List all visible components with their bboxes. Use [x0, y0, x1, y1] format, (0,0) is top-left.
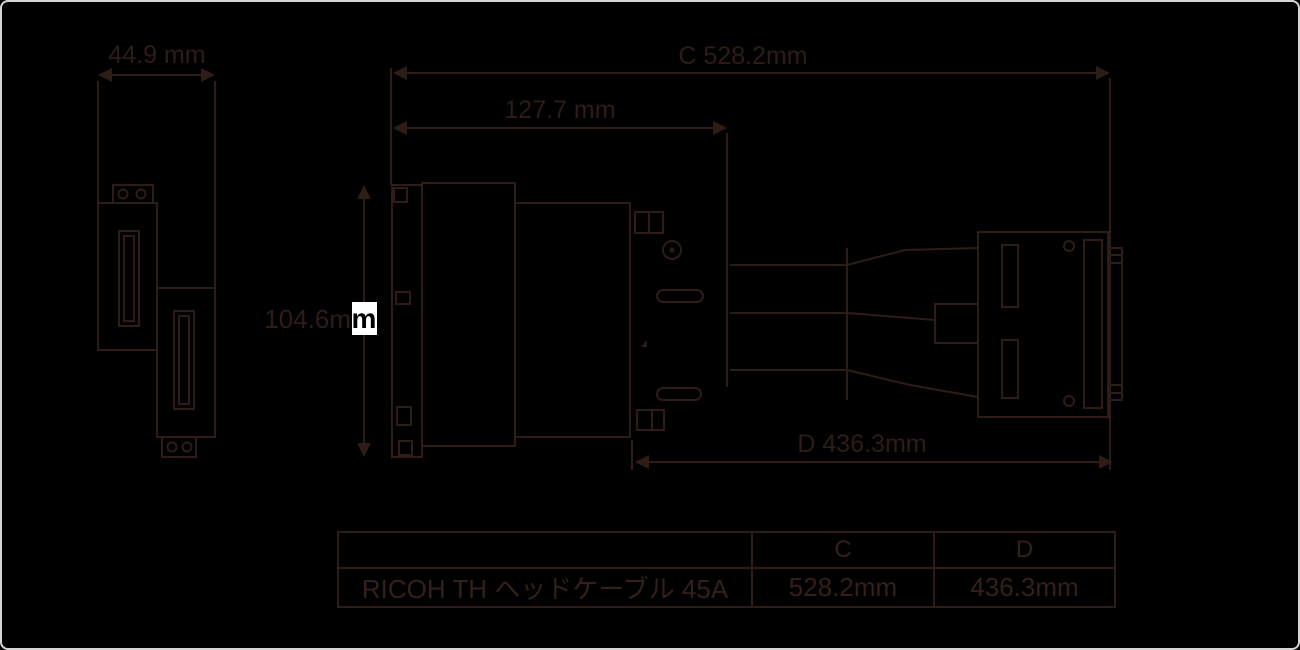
- lower-connector-slot: [174, 311, 194, 409]
- screw-hole-icon: [1064, 241, 1074, 251]
- table-header-c: C: [752, 532, 934, 568]
- connector-body: [978, 232, 1108, 417]
- wire-middle: [847, 313, 935, 320]
- connector-body: [422, 183, 515, 446]
- spec-table-header-row: C D: [338, 532, 1115, 568]
- boot-rib-bottom: [657, 388, 701, 400]
- screw-hole-icon: [1064, 396, 1074, 406]
- thumbscrew-center: [670, 248, 675, 253]
- arrowhead-up-icon: [357, 185, 371, 199]
- ferrite-block: [935, 304, 978, 343]
- cell-product-name: RICOH TH ヘッドケーブル 45A: [338, 568, 752, 607]
- right-connector-drawing: [978, 232, 1122, 417]
- dimension-d-436-3mm: D 436.3mm: [632, 430, 1113, 470]
- screw-hole-icon: [137, 190, 146, 199]
- arrowhead-right-icon: [713, 121, 727, 135]
- wire-top: [847, 248, 978, 265]
- upper-connector-slot: [119, 231, 139, 326]
- dimension-104-6mm: 104.6m m: [264, 185, 377, 457]
- lower-connector-slot-inner: [179, 316, 189, 404]
- boot-rib-top: [657, 290, 703, 302]
- screw-hole-icon: [168, 443, 177, 452]
- dimension-44-9mm-label: 44.9 mm: [108, 41, 205, 69]
- left-connector-drawing: [98, 185, 215, 457]
- front-wall: [1084, 240, 1102, 408]
- screw-hole-icon: [183, 443, 192, 452]
- table-header-product: [338, 532, 752, 568]
- screw-hole-icon: [119, 190, 128, 199]
- dimension-d-label: D 436.3mm: [797, 430, 926, 458]
- connector-front-section: [515, 203, 630, 437]
- arrowhead-right-icon: [1096, 66, 1110, 80]
- arrowhead-left-icon: [98, 68, 112, 82]
- upper-connector-slot-inner: [124, 236, 134, 321]
- inner-slot: [1002, 245, 1018, 307]
- latch-block-bottom: [637, 410, 664, 430]
- arrowhead-right-icon: [201, 68, 215, 82]
- dimension-104-6mm-label: 104.6m: [264, 304, 351, 334]
- inner-slot: [1002, 340, 1018, 398]
- cell-c-value: 528.2mm: [752, 568, 934, 607]
- arrowhead-left-icon: [393, 66, 407, 80]
- spec-table-data-row: RICOH TH ヘッドケーブル 45A 528.2mm 436.3mm: [338, 568, 1115, 607]
- spec-table: C D RICOH TH ヘッドケーブル 45A 528.2mm 436.3mm: [337, 531, 1116, 608]
- highlighted-letter: m: [352, 303, 377, 334]
- flange-hole: [394, 188, 407, 202]
- upper-connector-body: [98, 203, 157, 350]
- flange-hole: [399, 441, 412, 455]
- dimension-127-7mm-label: 127.7 mm: [504, 96, 615, 124]
- arrowhead-left-icon: [635, 455, 649, 469]
- arrowhead-left-icon: [393, 121, 407, 135]
- wire-bottom: [847, 370, 978, 397]
- dimension-c-label: C 528.2mm: [678, 42, 807, 70]
- index-mark-icon: [641, 340, 647, 347]
- dimension-drawing-page: { "drawing": { "dims": { "width_small": …: [0, 0, 1300, 650]
- dimension-c-528-2mm: C 528.2mm: [393, 42, 1110, 80]
- dimension-127-7mm: 127.7 mm: [393, 96, 727, 135]
- cell-d-value: 436.3mm: [934, 568, 1115, 607]
- table-header-d: D: [934, 532, 1115, 568]
- middle-connector-drawing: [392, 183, 703, 457]
- arrowhead-down-icon: [357, 443, 371, 457]
- flange-hole: [397, 407, 411, 425]
- flange-hole: [396, 292, 410, 304]
- cable-drawing: [730, 248, 978, 400]
